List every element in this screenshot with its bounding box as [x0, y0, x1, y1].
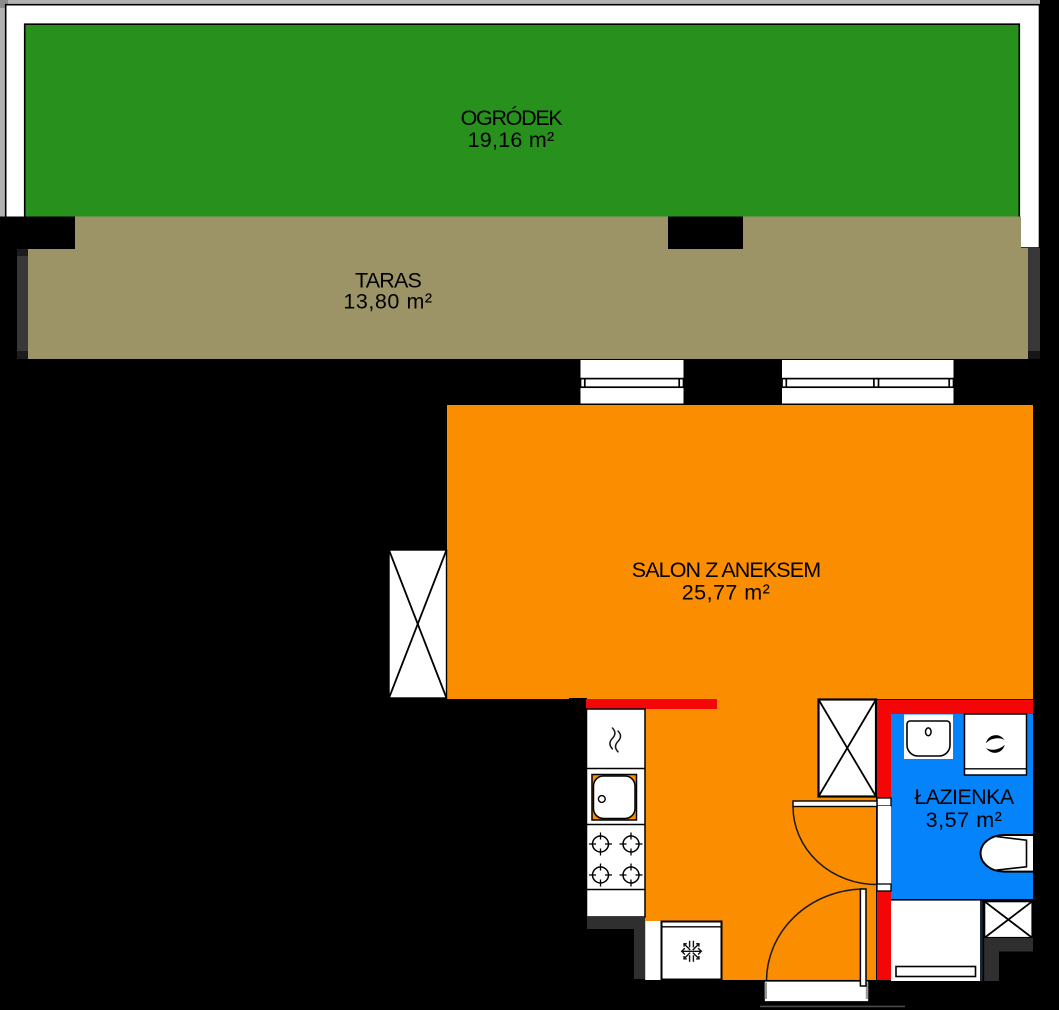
- svg-text:3,57 m²: 3,57 m²: [926, 808, 1003, 832]
- svg-text:OGRÓDEK: OGRÓDEK: [461, 105, 564, 130]
- svg-text:SALON Z ANEKSEM: SALON Z ANEKSEM: [632, 558, 820, 582]
- svg-text:13,80 m²: 13,80 m²: [343, 290, 432, 314]
- svg-text:ŁAZIENKA: ŁAZIENKA: [914, 785, 1014, 809]
- svg-text:19,16 m²: 19,16 m²: [468, 128, 555, 152]
- svg-text:25,77 m²: 25,77 m²: [682, 581, 770, 605]
